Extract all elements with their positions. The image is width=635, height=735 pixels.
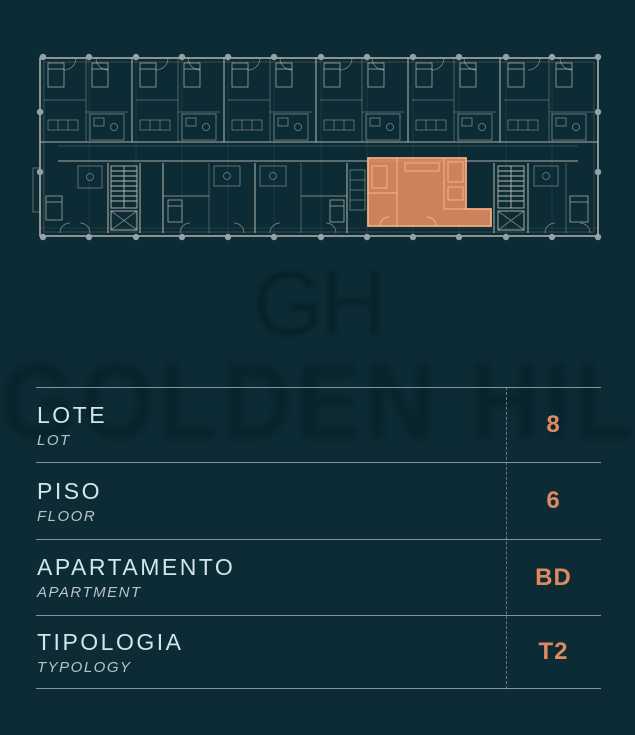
floor-plan-drawing [0, 0, 635, 290]
row-sublabel: APARTMENT [37, 584, 506, 601]
table-row: TIPOLOGIA TYPOLOGY T2 [36, 615, 601, 689]
table-row: APARTAMENTO APARTMENT BD [36, 539, 601, 615]
row-sublabel: TYPOLOGY [37, 659, 506, 676]
row-label: PISO [37, 478, 506, 505]
table-row: LOTE LOT 8 [36, 387, 601, 462]
table-row: PISO FLOOR 6 [36, 462, 601, 539]
row-labels: APARTAMENTO APARTMENT [36, 540, 506, 615]
row-label: LOTE [37, 402, 506, 429]
row-label: APARTAMENTO [37, 554, 506, 581]
row-labels: TIPOLOGIA TYPOLOGY [36, 616, 506, 688]
row-sublabel: LOT [37, 432, 506, 449]
row-labels: LOTE LOT [36, 388, 506, 462]
floor-plan [0, 0, 635, 290]
row-value: 6 [506, 463, 601, 539]
unit-detail-page: { "colors": { "background": "#0c2b34", "… [0, 0, 635, 735]
row-labels: PISO FLOOR [36, 463, 506, 539]
row-label: TIPOLOGIA [37, 629, 506, 656]
row-value: 8 [506, 388, 601, 462]
unit-details-table: LOTE LOT 8 PISO FLOOR 6 APARTAMENTO APAR… [36, 387, 601, 689]
highlighted-unit[interactable] [368, 158, 491, 226]
column-grid-dots [37, 54, 601, 240]
table-dotted-divider [506, 387, 507, 689]
row-value: T2 [506, 616, 601, 688]
row-value: BD [506, 540, 601, 615]
row-sublabel: FLOOR [37, 508, 506, 525]
